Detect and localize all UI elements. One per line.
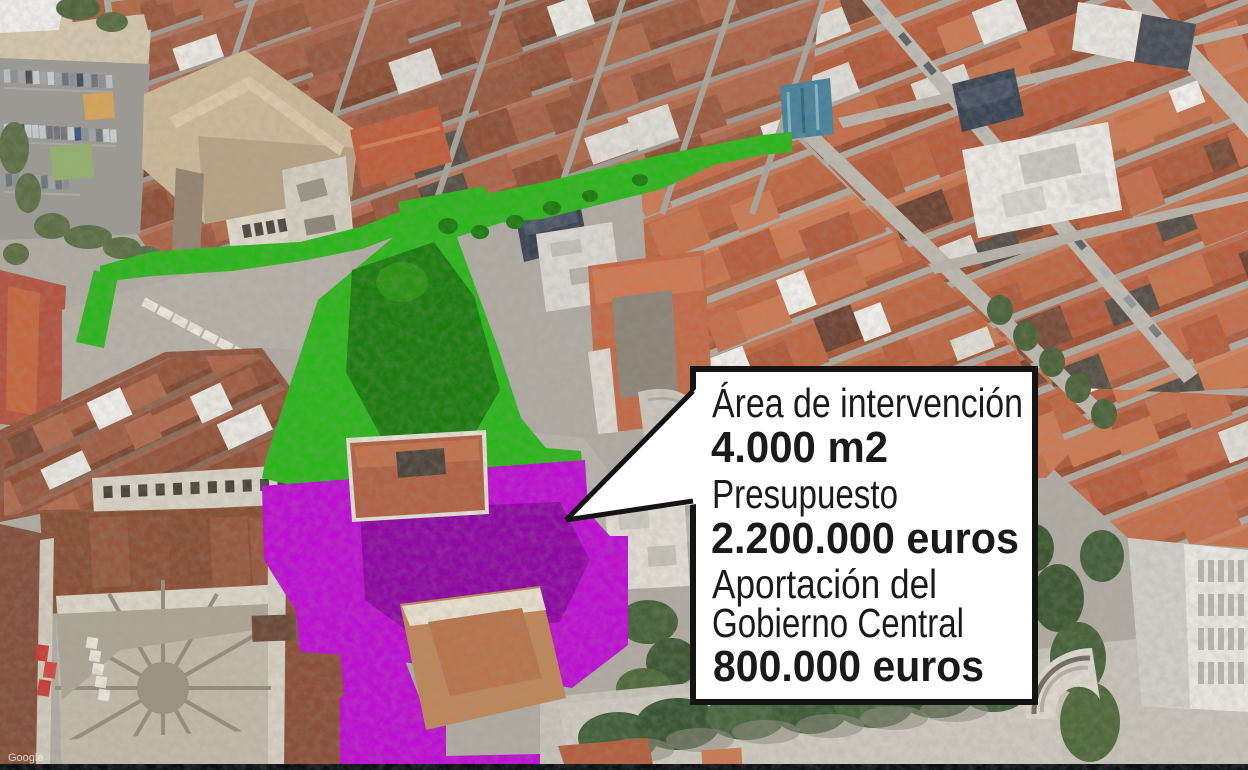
svg-text:Área de intervención: Área de intervención [712,380,1023,426]
svg-text:Gobierno Central: Gobierno Central [712,600,964,646]
svg-text:Presupuesto: Presupuesto [712,471,898,517]
svg-text:800.000 euros: 800.000 euros [713,642,984,691]
svg-text:2.200.000 euros: 2.200.000 euros [711,514,1019,563]
svg-text:4.000 m2: 4.000 m2 [711,423,888,472]
